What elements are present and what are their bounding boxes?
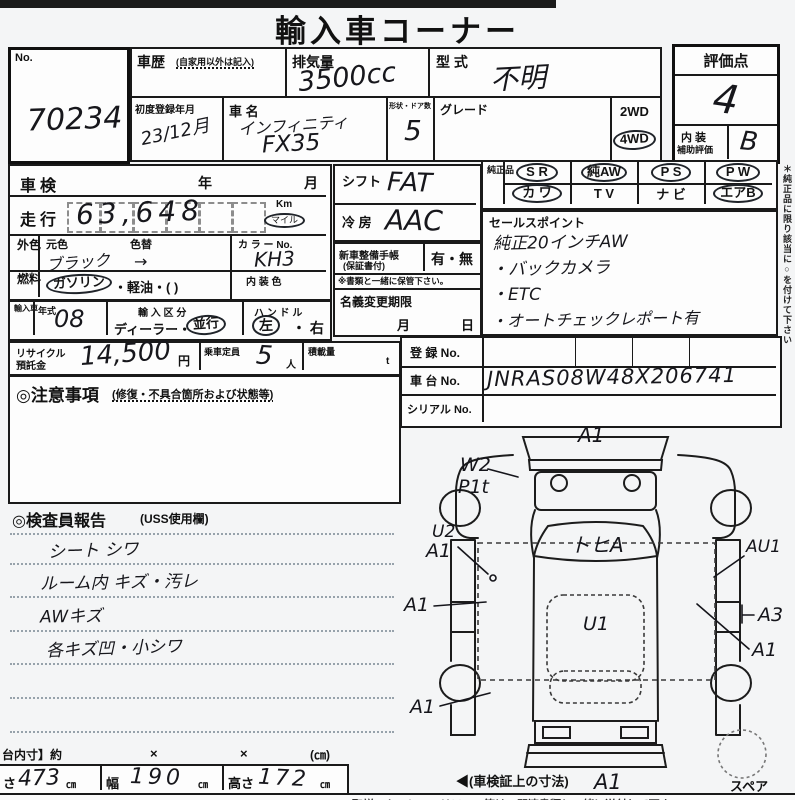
- height-unit: ㎝: [320, 776, 330, 791]
- fuel-other-options: ・軽油・( ): [114, 277, 178, 296]
- caution-box: ◎注意事項 (修復・不具合箇所および状態等): [8, 375, 401, 504]
- option-tv: T V: [571, 183, 637, 204]
- dims-x1: ×: [150, 746, 158, 761]
- history-label: 車歴: [137, 52, 165, 72]
- length-value: 473: [18, 765, 61, 791]
- interior-color-label: 内 装 色: [246, 273, 282, 288]
- grade-label: グレード: [440, 101, 488, 118]
- option-ps: P S: [638, 162, 704, 183]
- auction-sheet: 輸入車コーナー No. 70234 車歴 (自家用以外は記入) 排気量 3500…: [0, 0, 795, 800]
- shift-ac-box: シフト FAT 冷 房 AAC: [333, 164, 482, 242]
- report-line: シート シワ: [48, 534, 139, 562]
- drive-2wd: 2WD: [620, 104, 649, 119]
- divider: [222, 766, 224, 790]
- transfer-day: 日: [461, 315, 474, 334]
- mileage-unit-mile-selected: マイル: [264, 213, 305, 228]
- lot-number-value: 70234: [26, 100, 123, 138]
- dims-row-label: 台内寸】約: [2, 746, 62, 763]
- model-year-value: 08: [54, 305, 85, 333]
- dims-unit: (㎝): [310, 746, 330, 763]
- caution-note: (修復・不具合箇所および状態等): [112, 386, 273, 402]
- report-line: AWキズ: [40, 601, 103, 627]
- import-division-dealer: ディーラー・: [114, 319, 191, 338]
- damage-right-quarter: A3: [756, 604, 783, 626]
- footer-strip: 取説・キーレス・リモコン等は、関連書類と一緒に送付して下さい: [0, 793, 795, 800]
- score-value: 4: [710, 75, 742, 124]
- divider: [38, 270, 40, 297]
- lot-number-label: No.: [15, 52, 33, 64]
- reg-no-label: 登 録 No.: [410, 344, 460, 361]
- capacity-unit: 人: [286, 356, 296, 371]
- divider: [575, 338, 576, 366]
- drive-cell: 2WD 4WD: [610, 96, 662, 162]
- ruled-line: [10, 663, 394, 665]
- recycle-value: 14,500: [79, 336, 172, 372]
- interior-divider: [727, 126, 729, 159]
- shaken-year-label: 年: [198, 173, 212, 193]
- dims-value-row: さ 473 ㎝ 幅 190 ㎝ 高さ 172 ㎝: [0, 764, 349, 796]
- inspector-note: (USS使用欄): [140, 510, 209, 527]
- sales-points-box: セールスポイント 純正20インチAW ・バックカメラ ・ETC ・オートチェック…: [481, 210, 778, 336]
- width-unit: ㎝: [198, 776, 208, 791]
- grade-cell: グレード: [433, 96, 616, 162]
- interior-score-value: B: [738, 126, 759, 158]
- drive-4wd-selected: 4WD: [613, 129, 657, 151]
- maintenance-options: 有・無: [431, 249, 473, 269]
- first-reg-label: 初度登録年月: [135, 101, 195, 116]
- sales-line: ・バックカメラ: [491, 253, 610, 280]
- lot-number-box: No. 70234: [8, 47, 130, 164]
- damage-roof: U1: [583, 613, 609, 635]
- fuel-gasoline: ガソリン: [53, 274, 106, 292]
- inspector-title: ◎検査員報告: [12, 507, 106, 531]
- transfer-box: 名義変更期限 月 日: [333, 288, 482, 337]
- shape-doors-label: 形状・ドア数: [389, 101, 431, 111]
- sales-line: ・ETC: [491, 280, 541, 305]
- dims-x2: ×: [240, 746, 248, 761]
- interior-score-row: 内 装 補助評価 B: [675, 124, 777, 161]
- recycle-label-2: 預託金: [16, 357, 46, 372]
- shift-label: シフト: [342, 171, 381, 190]
- shaken-month-label: 月: [304, 173, 318, 193]
- ruled-line: [10, 630, 394, 632]
- model-code-label: 型 式: [436, 52, 468, 72]
- ac-label: 冷 房: [342, 212, 372, 231]
- options-side-label: 純正品: [487, 164, 497, 177]
- width-value: 190: [130, 764, 185, 791]
- car-name-line2: FX35: [261, 129, 321, 158]
- ruled-line: [10, 731, 394, 733]
- fuel-gasoline-selected: ガソリン: [46, 272, 113, 295]
- score-header: 評価点: [675, 47, 777, 76]
- ruled-line: [10, 563, 394, 565]
- registration-box: 登 録 No. 車 台 No. シリアル No. JNRAS08W48X2067…: [400, 336, 782, 428]
- car-name-cell: 車 名 インフィニティ FX35: [222, 96, 392, 162]
- history-cell: 車歴 (自家用以外は記入): [130, 47, 287, 100]
- first-reg-value: 23/12月: [138, 111, 212, 151]
- score-label: 評価点: [703, 53, 748, 70]
- recycle-row: リサイクル 預託金 14,500 円 乗車定員 5 人 積載量 t: [8, 341, 401, 376]
- inspector-report: ◎検査員報告 (USS使用欄) シート シワ ルーム内 キズ・汚レ AWキズ 各…: [8, 505, 397, 750]
- maintenance-box: 新車整備手帳 (保証書付) 有・無: [333, 242, 482, 277]
- spare-tire-circle: [718, 730, 766, 778]
- color-change-arrow: →: [134, 252, 147, 271]
- first-reg-cell: 初度登録年月 23/12月: [130, 96, 226, 162]
- score-box: 評価点 4 内 装 補助評価 B: [672, 44, 780, 164]
- ac-value: AAC: [385, 203, 443, 237]
- damage-right-rear: A1: [750, 639, 777, 661]
- model-code-value: 不明: [489, 56, 547, 99]
- serial-no-label: シリアル No.: [407, 401, 472, 417]
- damage-left-fender-2: P1t: [458, 476, 491, 498]
- chassis-no-label: 車 台 No.: [410, 372, 460, 389]
- option-pw: P W: [705, 162, 771, 183]
- shape-doors-cell: 形状・ドア数 5: [386, 96, 439, 162]
- length-unit: ㎝: [66, 776, 76, 791]
- height-value: 172: [257, 765, 309, 793]
- length-label: さ: [3, 773, 16, 792]
- dims-header-row: 台内寸】約 × × (㎝): [0, 746, 345, 764]
- load-unit: t: [386, 356, 389, 367]
- footer-note: 取説・キーレス・リモコン等は、関連書類と一緒に送付して下さい: [352, 796, 682, 800]
- maintenance-label-2: (保証書付): [343, 259, 385, 272]
- divider: [199, 343, 201, 370]
- damage-left-rear: A1: [408, 696, 435, 718]
- damage-left-fender-1: W2: [460, 454, 491, 476]
- caution-title: ◎注意事項: [16, 381, 99, 406]
- mileage-unit-km: Km: [276, 199, 292, 210]
- maintenance-note: ※書類と一緒に保管下さい。: [338, 275, 448, 287]
- option-aw: 純AW: [571, 162, 637, 183]
- divider: [100, 766, 102, 790]
- damage-left-door-1: U2: [432, 522, 455, 542]
- color-no-value: KH3: [254, 246, 296, 271]
- divider: [242, 302, 244, 335]
- divider: [10, 270, 326, 272]
- damage-right-door: AU1: [745, 537, 781, 557]
- ruled-line: [10, 697, 394, 699]
- side-note: ＊純正品に限り該当に○を付けて下さい: [779, 164, 794, 439]
- divider: [302, 343, 304, 370]
- mileage-unit-mile: マイル: [271, 215, 298, 225]
- damage-left-door-2: A1: [424, 540, 451, 562]
- divider: [230, 234, 232, 299]
- capacity-value: 5: [255, 340, 274, 371]
- divider: [423, 244, 425, 271]
- height-label: 高さ: [228, 773, 254, 792]
- damage-windshield: トヒA: [570, 533, 624, 557]
- import-division-label: 輸 入 区 分: [138, 304, 186, 319]
- report-line: ルーム内 キズ・汚レ: [40, 567, 198, 595]
- divider: [33, 302, 35, 335]
- report-line: 各キズ凹・小シワ: [46, 632, 183, 662]
- sales-line: 純正20インチAW: [493, 227, 628, 254]
- chassis-no-value: JNRAS08W48X206741: [487, 363, 737, 391]
- transfer-month: 月: [397, 315, 410, 334]
- mileage-digit-box: [232, 202, 266, 233]
- exterior-label: 外色: [17, 238, 31, 252]
- import-side-label: 輸入車: [14, 304, 23, 313]
- options-grid: 純正品 S R 純AW P S P W カ ワ T V ナ ビ エアB: [481, 160, 778, 210]
- divider: [106, 302, 108, 335]
- import-row: 輸入車 年式 08 輸 入 区 分 ディーラー・ 並行 ハ ン ド ル 左 ・ …: [8, 300, 332, 341]
- history-note: (自家用以外は記入): [176, 55, 254, 68]
- spare-label: スペア: [730, 779, 768, 794]
- ruled-line: [10, 596, 394, 598]
- recycle-unit: 円: [178, 352, 190, 369]
- import-division-selected: 並行: [185, 314, 226, 337]
- shape-doors-value: 5: [404, 114, 422, 147]
- option-airbag: エアB: [705, 183, 771, 204]
- capacity-label: 乗車定員: [204, 345, 240, 358]
- dims-note: ◀(車検証上の寸法): [456, 774, 569, 789]
- shaken-label: 車検: [20, 172, 60, 196]
- sales-line: ・オートチェックレポート有: [491, 304, 699, 332]
- fuel-label: 燃料: [17, 273, 31, 286]
- divider: [38, 234, 40, 270]
- color-change-label: 色替: [130, 236, 152, 252]
- transfer-label: 名義変更期限: [340, 293, 412, 310]
- option-navi: ナ ビ: [638, 183, 704, 204]
- mileage-value: 63,648: [75, 194, 204, 231]
- load-label: 積載量: [308, 345, 335, 358]
- divider: [482, 338, 484, 422]
- damage-left-mid: A1: [402, 594, 429, 616]
- option-sr: S R: [504, 162, 570, 183]
- option-kawa: カ ワ: [504, 183, 570, 204]
- mileage-label: 走行: [20, 206, 60, 230]
- divider: [402, 394, 776, 396]
- ruled-line: [10, 533, 394, 535]
- car-damage-diagram: A1 W2 P1t U2 A1 A1 A1 トヒA U1 AU1 A3 A1 A…: [398, 425, 795, 800]
- damage-rear-bumper: A1: [592, 770, 622, 794]
- vehicle-main-block: 車検 年 月 走行 63,648 Km マイル 外色 元色 色替 ブラック → …: [8, 164, 332, 301]
- divider: [632, 338, 633, 366]
- handle-right: ・ 右: [292, 318, 324, 338]
- shift-value: FAT: [386, 167, 432, 199]
- model-code-cell: 型 式 不明: [428, 47, 662, 100]
- damage-front-bumper: A1: [576, 425, 604, 447]
- interior-label-2: 補助評価: [677, 143, 713, 156]
- handle-selected: 左: [252, 315, 281, 337]
- divider: [689, 338, 690, 366]
- width-label: 幅: [106, 773, 119, 792]
